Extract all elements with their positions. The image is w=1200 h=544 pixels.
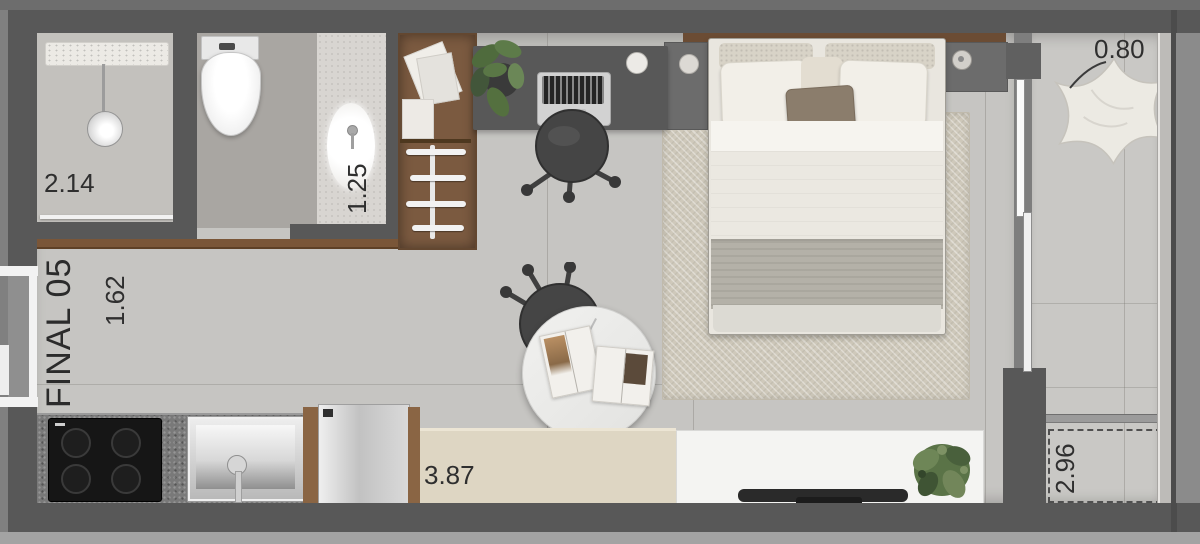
book-page (623, 353, 648, 385)
burner (111, 428, 141, 458)
dishwasher (318, 404, 410, 505)
dim-entry-hall-width: 1.62 (102, 275, 128, 326)
blanket (711, 239, 943, 309)
console-plant (902, 430, 982, 506)
laptop-keyboard (542, 76, 604, 104)
outside-margin (0, 532, 1200, 544)
balcony-threshold (1032, 414, 1157, 423)
entry-door-threshold (0, 345, 9, 395)
dim-shower-width: 2.14 (44, 170, 95, 196)
cabinet-panel (408, 407, 420, 503)
kitchen-sink (188, 417, 307, 501)
cooktop (48, 418, 162, 502)
bathroom-wall (173, 33, 197, 228)
hanger (406, 149, 466, 155)
floor-plan: FINAL 05 1.62 2.14 1.25 3.87 0.80 2.96 (0, 0, 1200, 544)
duvet (711, 151, 943, 245)
open-book (592, 346, 655, 407)
sliding-door-glass (1023, 212, 1032, 372)
vase (679, 54, 699, 74)
cup (626, 52, 648, 74)
storage-box (402, 99, 434, 139)
nightstand-right (940, 42, 1008, 92)
towel-shelf (45, 42, 169, 66)
exterior-wall (8, 503, 1200, 532)
balcony-tile-line (1032, 303, 1157, 304)
hanger (412, 225, 464, 231)
toilet (199, 36, 261, 136)
floor-tile-line (985, 33, 986, 503)
dim-balcony-width: 0.80 (1094, 36, 1145, 62)
cabinet-panel (303, 407, 318, 503)
burner (61, 464, 91, 494)
folded-linen (416, 52, 460, 106)
sliding-door-track (37, 239, 400, 249)
bathroom-wall (37, 222, 197, 240)
burner (61, 428, 91, 458)
nightstand-left (664, 42, 708, 130)
book-page (544, 335, 572, 377)
sliding-door-jamb (1006, 43, 1041, 79)
dim-balcony-length: 2.96 (1052, 443, 1078, 494)
toilet-flush-plate (219, 43, 235, 50)
dishwasher-control (323, 409, 333, 417)
sink-basin (196, 425, 295, 489)
outside-margin (0, 0, 1200, 10)
wardrobe-shelf (400, 139, 471, 143)
wardrobe (398, 33, 477, 250)
sink-faucet-stem (235, 471, 242, 503)
sliding-door-glass (1016, 79, 1025, 217)
desk-chair (517, 104, 627, 204)
balcony-tile-line (1032, 387, 1157, 388)
exterior-wall (8, 10, 1200, 33)
unit-label: FINAL 05 (42, 258, 76, 408)
burner (111, 464, 141, 494)
toilet-bowl (201, 52, 261, 136)
tray-dot (958, 56, 964, 62)
dim-vanity-width: 1.25 (344, 163, 370, 214)
outside-margin (1176, 33, 1200, 503)
foot-bench (713, 305, 941, 332)
balcony-railing (1157, 33, 1172, 503)
cooktop-control (55, 423, 65, 426)
dim-kitchen-run: 3.87 (424, 462, 475, 488)
hanger (410, 175, 466, 181)
vanity-faucet-stem (351, 133, 354, 149)
interior-wall-column (1003, 368, 1046, 503)
shower-glass-screen (40, 215, 173, 219)
shower-head (87, 111, 123, 147)
hanger (406, 201, 466, 207)
bed (708, 38, 946, 335)
entry-door-leaf (29, 266, 37, 407)
outside-margin (0, 10, 8, 544)
